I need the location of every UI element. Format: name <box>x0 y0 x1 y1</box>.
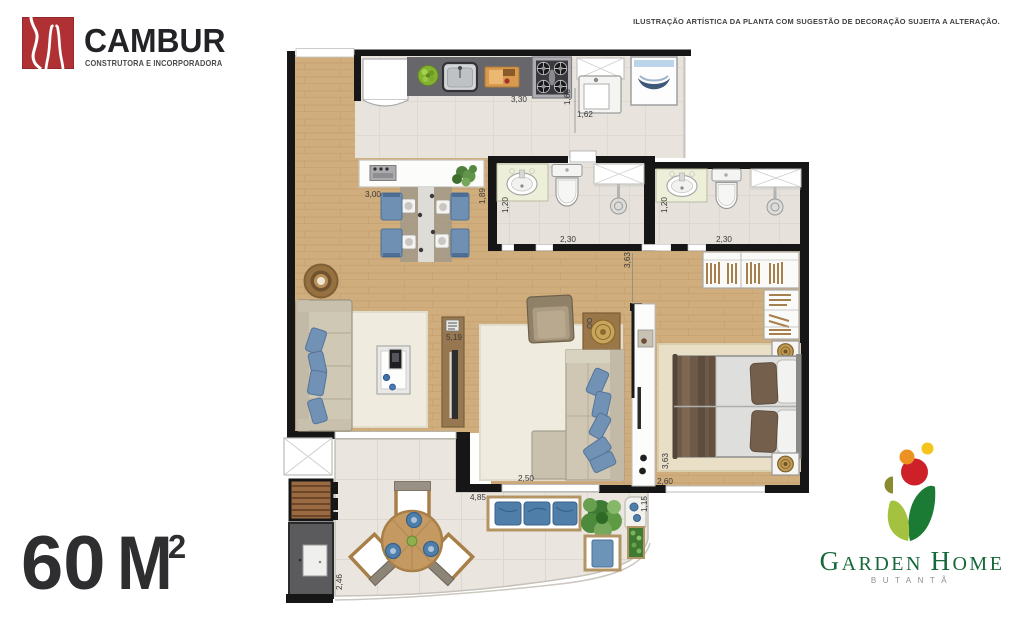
svg-text:2,60: 2,60 <box>657 477 673 486</box>
svg-text:5,19: 5,19 <box>446 333 462 342</box>
svg-text:2,30: 2,30 <box>716 235 732 244</box>
svg-text:1,20: 1,20 <box>660 197 669 213</box>
svg-text:2,30: 2,30 <box>560 235 576 244</box>
svg-text:1,15: 1,15 <box>640 496 649 512</box>
svg-text:2,50: 2,50 <box>518 474 534 483</box>
svg-text:3,63: 3,63 <box>623 252 632 268</box>
svg-text:4,85: 4,85 <box>470 493 486 502</box>
svg-text:3,30: 3,30 <box>511 95 527 104</box>
svg-text:1,89: 1,89 <box>478 188 487 204</box>
svg-text:1,20: 1,20 <box>501 197 510 213</box>
svg-text:1,60: 1,60 <box>563 89 572 105</box>
svg-text:1,62: 1,62 <box>577 110 593 119</box>
svg-text:2,46: 2,46 <box>335 574 344 590</box>
svg-text:3,63: 3,63 <box>661 453 670 469</box>
svg-text:3,00: 3,00 <box>365 190 381 199</box>
